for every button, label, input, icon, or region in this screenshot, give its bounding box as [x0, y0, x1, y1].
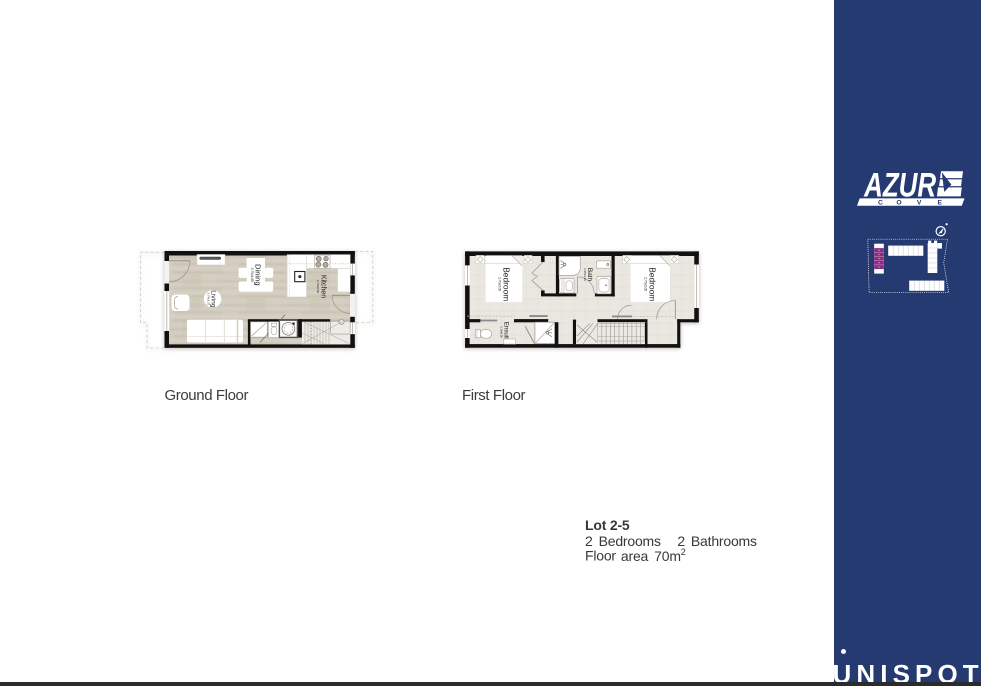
svg-text:2.70x1.88: 2.70x1.88 — [250, 268, 254, 282]
svg-text:Bedroom: Bedroom — [647, 267, 657, 301]
svg-text:C: C — [878, 200, 883, 207]
svg-text:E: E — [938, 200, 943, 207]
svg-text:O: O — [896, 200, 901, 207]
svg-text:V: V — [917, 200, 922, 207]
svg-text:3.74x3.31: 3.74x3.31 — [206, 293, 210, 306]
svg-text:2.70x3.00: 2.70x3.00 — [644, 277, 648, 291]
svg-text:3.10x0.90: 3.10x0.90 — [500, 326, 504, 338]
svg-text:Bedroom: Bedroom — [501, 267, 511, 301]
svg-text:2.70x3.00: 2.70x3.00 — [498, 277, 502, 291]
svg-text:2.70x2.60: 2.70x2.60 — [316, 280, 320, 294]
svg-text:1.95x2.20: 1.95x2.20 — [583, 268, 587, 281]
